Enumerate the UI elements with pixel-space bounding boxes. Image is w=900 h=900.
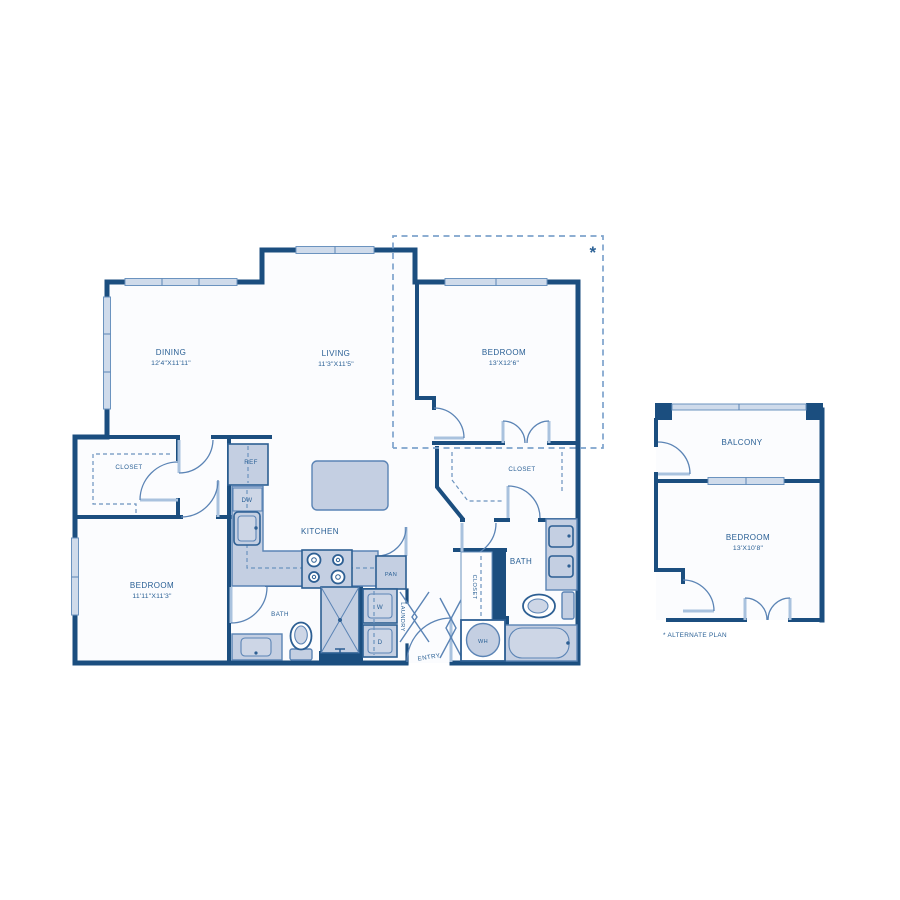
- bedroom-lower-dims: 11'11"X11'3": [132, 593, 172, 600]
- floor-plan-drawing: *: [0, 0, 900, 900]
- living-dims: 11'3"X11'5": [318, 361, 354, 368]
- alternate-plan: BALCONY BEDROOM 13'X10'8" * ALTERNATE PL…: [655, 403, 823, 639]
- closet-walk-in-label: CLOSET: [508, 466, 535, 473]
- dining-dims: 12'4"X11'11": [151, 360, 191, 367]
- alternate-bedroom-dims: 13'X10'8": [733, 545, 764, 552]
- bath-right-label: BATH: [510, 557, 532, 566]
- refrigerator-label: REF: [244, 459, 258, 466]
- bath-left-toilet-tank: [290, 649, 312, 660]
- dining-label: DINING: [156, 348, 186, 357]
- alternate-star-marker: *: [589, 243, 596, 262]
- water-heater-label: WH: [478, 639, 488, 645]
- bath-left-label: BATH: [271, 611, 289, 618]
- alternate-bedroom-label: BEDROOM: [726, 533, 770, 542]
- kitchen-island: [312, 461, 388, 510]
- floor-plan-page: *: [0, 0, 900, 900]
- balcony-label: BALCONY: [721, 438, 762, 447]
- laundry-label: LAUNDRY: [399, 602, 405, 631]
- closet-upper-left-label: CLOSET: [115, 464, 142, 471]
- alternate-plan-footnote: * ALTERNATE PLAN: [663, 632, 727, 639]
- bath-right-toilet-tank: [562, 592, 574, 619]
- bedroom-lower-label: BEDROOM: [130, 581, 174, 590]
- balcony-post-left: [655, 403, 672, 420]
- main-unit: *: [72, 236, 604, 663]
- bedroom-upper-label: BEDROOM: [482, 348, 526, 357]
- dryer-label: D: [378, 639, 383, 646]
- hall-closet-wall-block: [492, 550, 506, 622]
- closet-hall-label: CLOSET: [471, 575, 477, 600]
- living-label: LIVING: [322, 349, 351, 358]
- pantry-label: PAN: [385, 572, 397, 578]
- laundry-fixtures: [363, 589, 397, 657]
- dishwasher-label: DW: [241, 497, 252, 504]
- kitchen-label: KITCHEN: [301, 527, 339, 536]
- bedroom-upper-dims: 13'X12'6": [489, 360, 520, 367]
- washer-label: W: [377, 604, 383, 611]
